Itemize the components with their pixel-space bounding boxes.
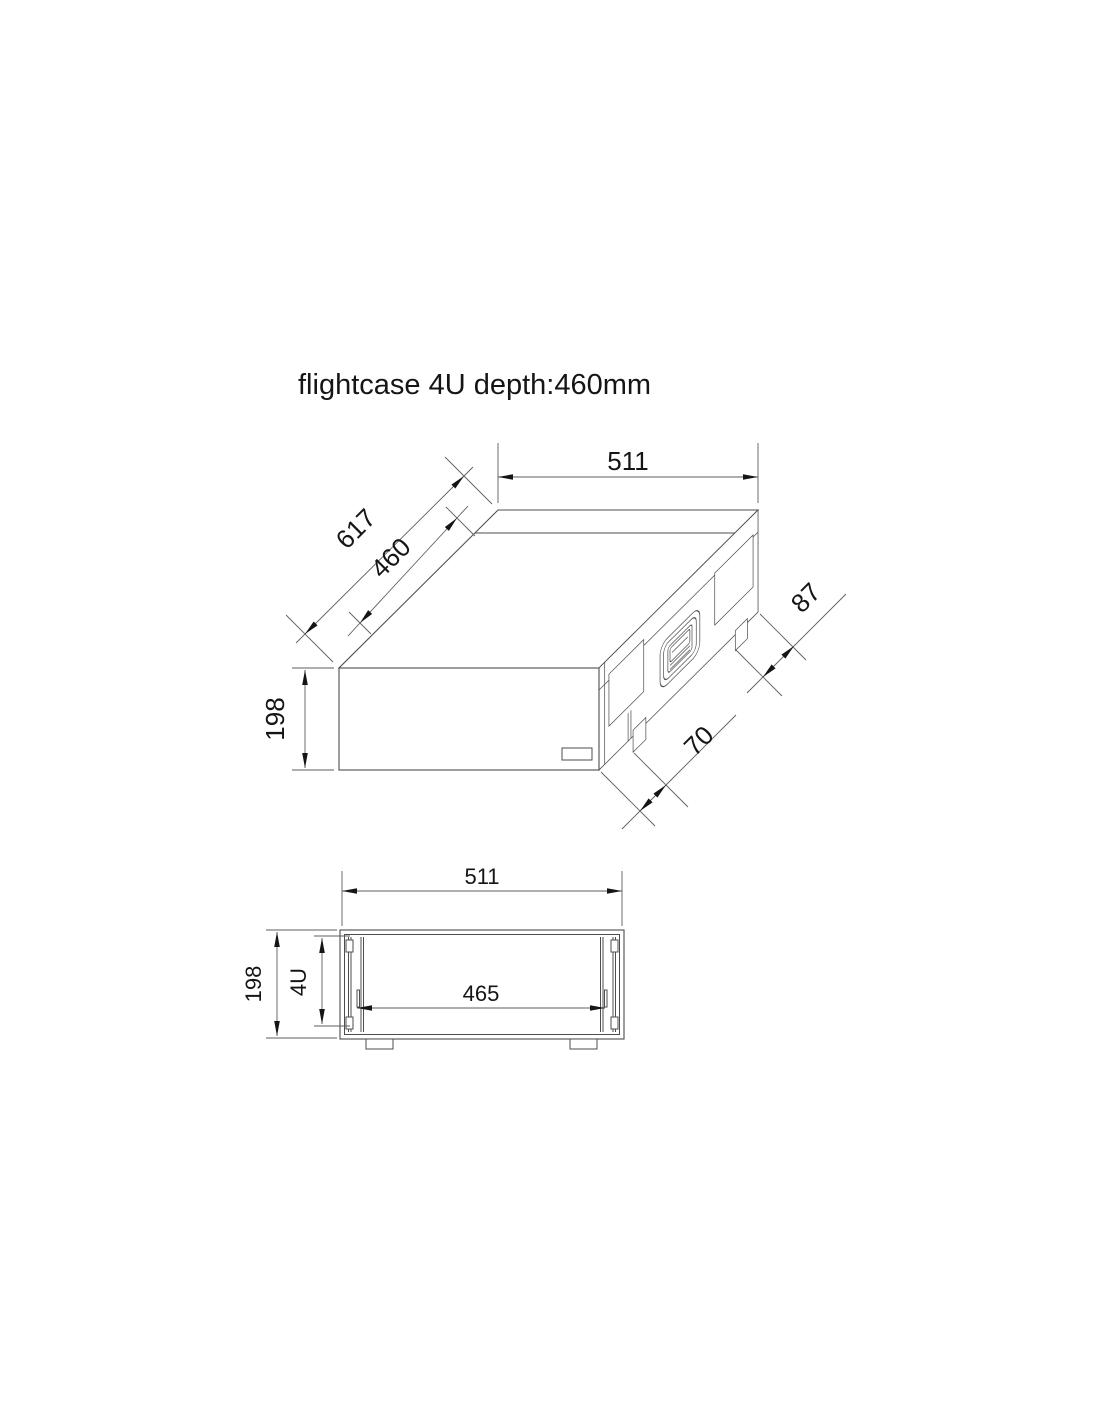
extension-line [445, 457, 492, 504]
rail-tab-bottom [346, 1017, 353, 1029]
extension-line [760, 614, 806, 660]
foot-left [366, 1039, 393, 1049]
dimension-line [640, 785, 666, 811]
rail-tab-top [346, 940, 353, 952]
dim-label: 198 [260, 697, 290, 740]
dimension-line [763, 646, 794, 677]
dim-label: 511 [607, 446, 648, 476]
page-title: flightcase 4U depth:460mm [298, 369, 651, 401]
dim-label: 198 [241, 966, 266, 1003]
dim-label: 511 [464, 864, 499, 889]
extension-line [736, 650, 782, 696]
extension-line [601, 772, 655, 826]
dim-label: 87 [785, 577, 827, 619]
isometric-view: 511 617 460 198 [260, 443, 846, 829]
dim-width-iso: 511 [498, 443, 758, 503]
foot-right [570, 1039, 597, 1049]
dim-height-iso: 198 [260, 668, 334, 770]
drawing-page: flightcase 4U depth:460mm [0, 0, 1100, 1422]
dim-label: 70 [678, 720, 720, 762]
extension-line [634, 753, 688, 807]
dim-label: 617 [330, 503, 382, 555]
dim-label: 4U [286, 968, 311, 996]
flightcase-technical-drawing: flightcase 4U depth:460mm [0, 0, 1100, 1422]
rail-tab-bottom [611, 1017, 618, 1029]
extension-line [446, 507, 475, 536]
rail-tab-top [611, 940, 618, 952]
extension-line [286, 615, 333, 662]
dim-width-front: 511 [342, 864, 622, 926]
front-face [339, 668, 599, 770]
front-view: 511 198 4U 465 [241, 864, 624, 1049]
dim-label: 465 [463, 981, 500, 1006]
dim-label: 460 [365, 532, 417, 584]
